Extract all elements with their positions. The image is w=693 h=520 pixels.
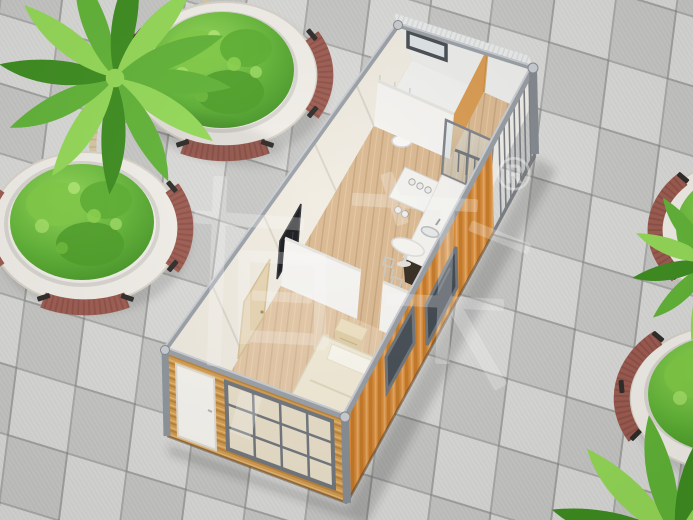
corner-cap <box>161 346 170 355</box>
corner-cap <box>340 412 350 422</box>
shrub <box>10 164 154 280</box>
corner-post-south <box>345 417 347 503</box>
planter-left <box>0 152 191 314</box>
corner-post-west <box>165 350 167 436</box>
corner-post-east <box>533 68 535 154</box>
scene: ® <box>0 0 693 520</box>
corner-cap <box>528 63 538 73</box>
render-canvas: ® <box>0 0 693 520</box>
entry-door <box>176 364 216 450</box>
corner-cap <box>394 21 403 30</box>
registered-symbol: ® <box>497 147 532 200</box>
